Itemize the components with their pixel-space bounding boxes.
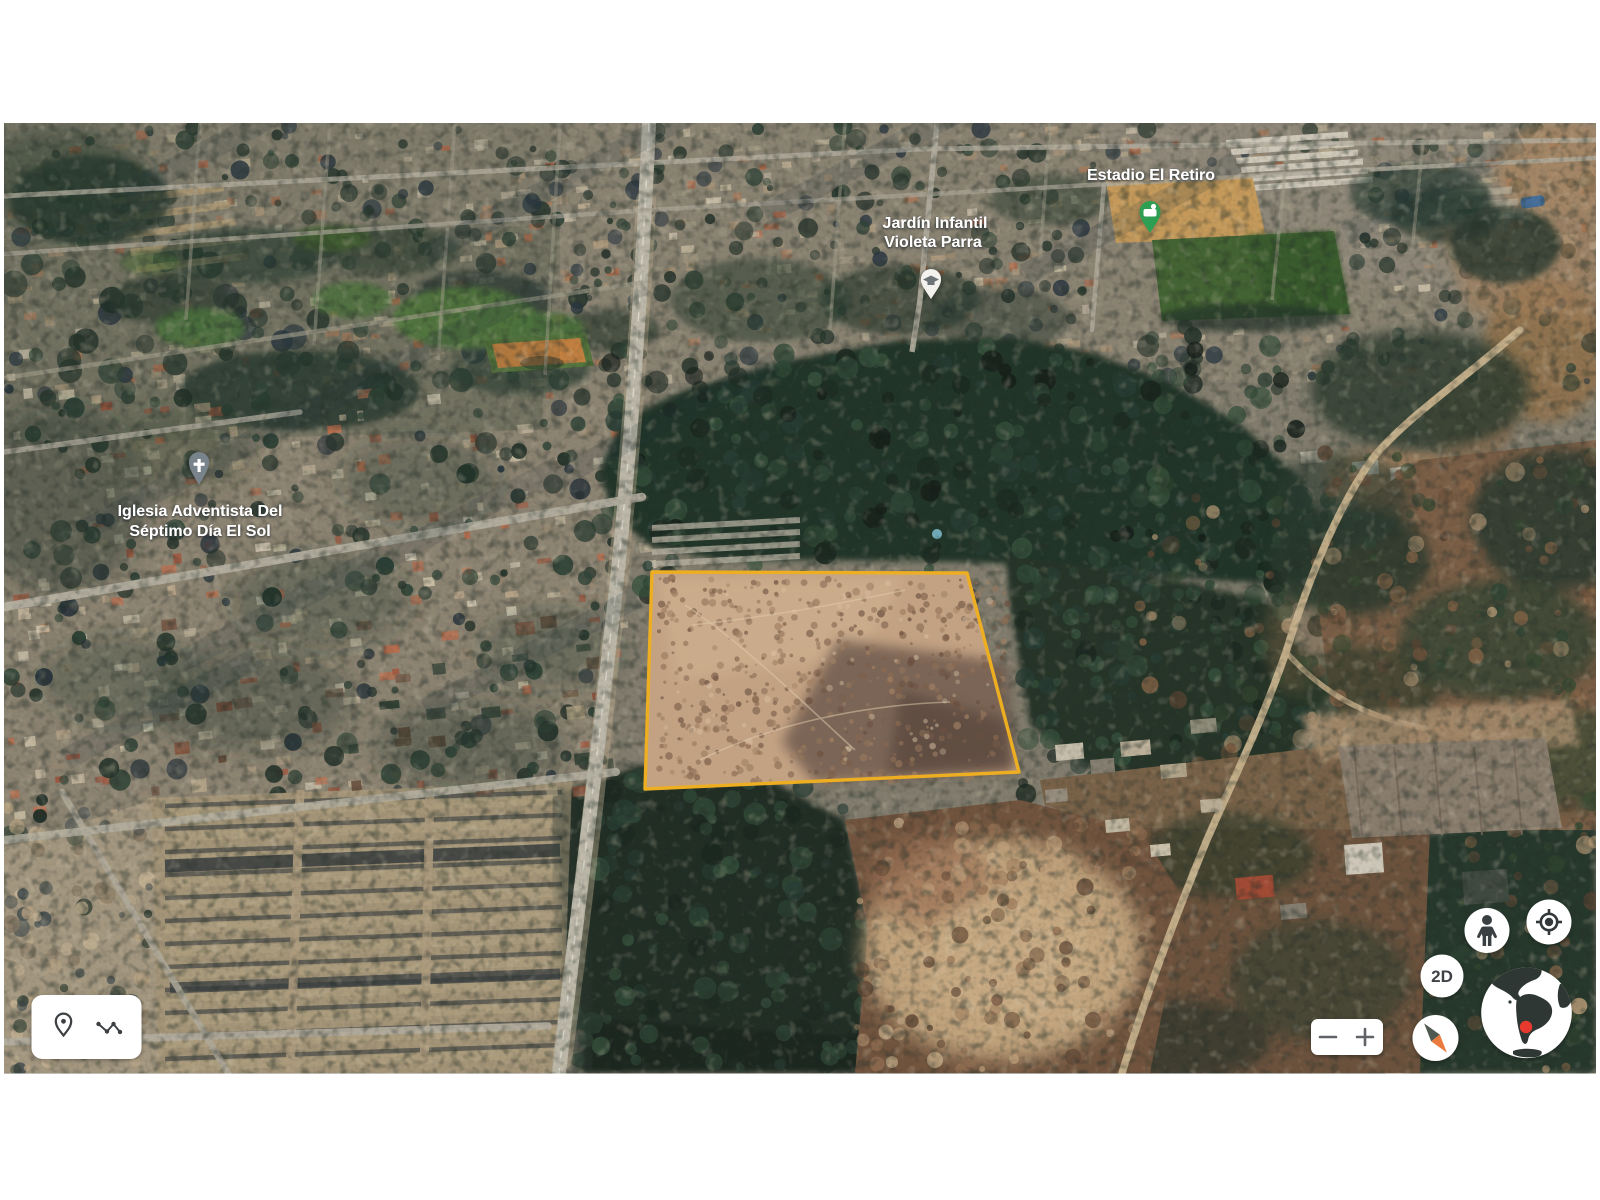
svg-text:Iglesia Adventista Del: Iglesia Adventista Del — [118, 503, 283, 520]
svg-text:Jardín Infantil: Jardín Infantil — [883, 215, 988, 232]
svg-text:Violeta Parra: Violeta Parra — [884, 234, 982, 251]
svg-text:2D: 2D — [1431, 967, 1453, 986]
svg-text:Séptimo Día El Sol: Séptimo Día El Sol — [129, 523, 270, 540]
svg-text:Estadio El Retiro: Estadio El Retiro — [1087, 167, 1215, 184]
